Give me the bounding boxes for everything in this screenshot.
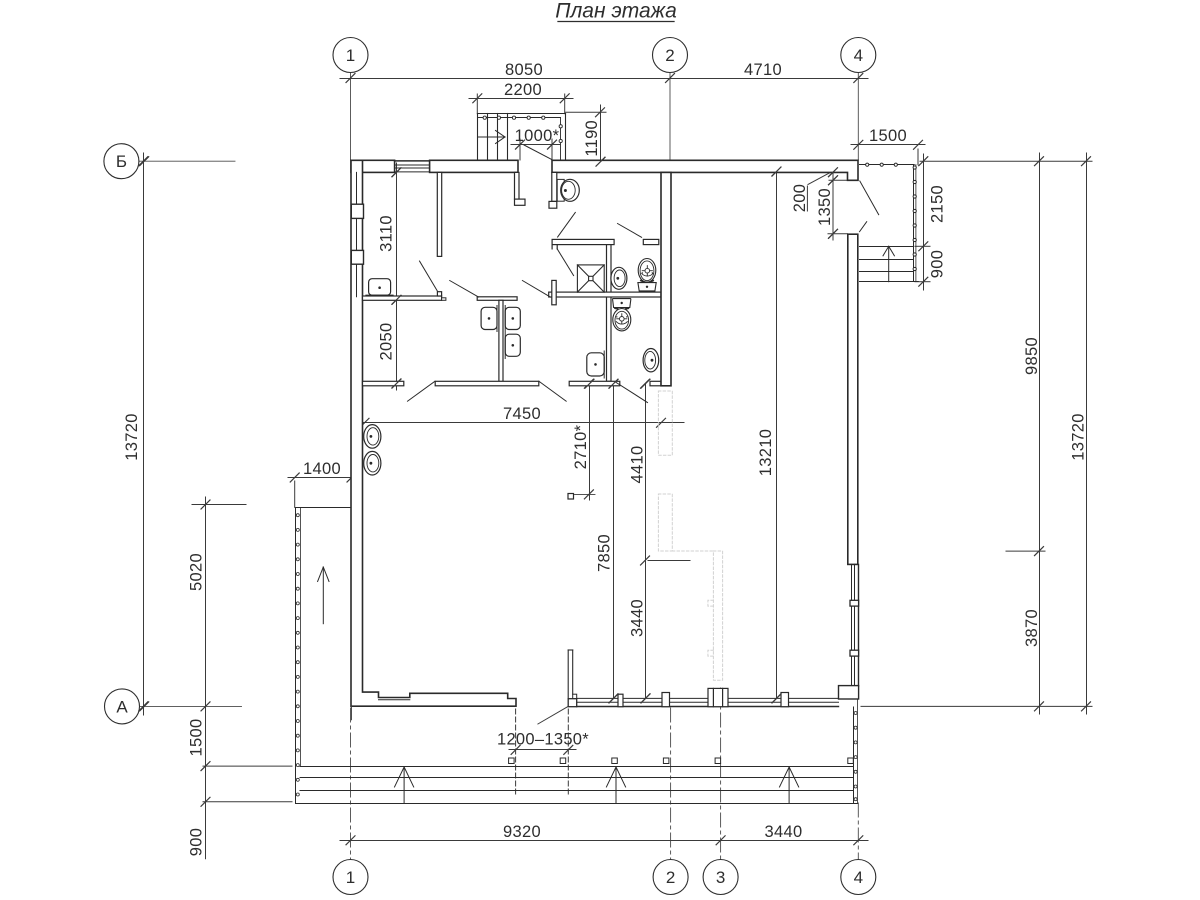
svg-text:7850: 7850 xyxy=(596,534,614,572)
svg-text:13720: 13720 xyxy=(123,413,141,460)
svg-text:3110: 3110 xyxy=(378,215,396,252)
svg-text:13720: 13720 xyxy=(1070,413,1088,460)
svg-text:4710: 4710 xyxy=(744,61,782,79)
svg-text:4410: 4410 xyxy=(629,446,647,484)
svg-text:1200–1350*: 1200–1350* xyxy=(497,731,589,749)
svg-text:200: 200 xyxy=(791,184,809,212)
svg-text:2: 2 xyxy=(665,46,674,65)
svg-text:2: 2 xyxy=(666,868,675,887)
svg-text:Б: Б xyxy=(116,152,127,171)
svg-text:4: 4 xyxy=(854,868,863,887)
svg-text:5020: 5020 xyxy=(188,553,206,591)
svg-text:1000*: 1000* xyxy=(515,127,560,145)
svg-text:3440: 3440 xyxy=(629,599,647,637)
svg-text:2050: 2050 xyxy=(378,323,396,361)
svg-text:7450: 7450 xyxy=(503,405,541,423)
svg-text:1: 1 xyxy=(346,46,355,65)
svg-text:2200: 2200 xyxy=(504,81,542,99)
svg-text:900: 900 xyxy=(929,250,947,278)
svg-text:8050: 8050 xyxy=(505,61,543,79)
svg-text:9320: 9320 xyxy=(503,823,541,841)
svg-text:1: 1 xyxy=(346,868,355,887)
svg-text:А: А xyxy=(116,697,128,716)
svg-text:1190: 1190 xyxy=(583,120,601,157)
svg-text:1400: 1400 xyxy=(303,460,341,478)
svg-text:3: 3 xyxy=(716,868,725,887)
svg-text:900: 900 xyxy=(188,828,206,856)
svg-text:2710*: 2710* xyxy=(572,424,590,469)
svg-text:3440: 3440 xyxy=(765,823,803,841)
svg-text:13210: 13210 xyxy=(757,429,775,476)
svg-text:1500: 1500 xyxy=(188,719,206,757)
svg-text:План этажа: План этажа xyxy=(555,0,677,23)
svg-text:2150: 2150 xyxy=(929,185,947,223)
svg-text:3870: 3870 xyxy=(1023,609,1041,647)
svg-text:9850: 9850 xyxy=(1023,337,1041,375)
svg-text:1350: 1350 xyxy=(816,188,834,226)
svg-text:1500: 1500 xyxy=(869,127,907,145)
svg-text:4: 4 xyxy=(854,46,863,65)
